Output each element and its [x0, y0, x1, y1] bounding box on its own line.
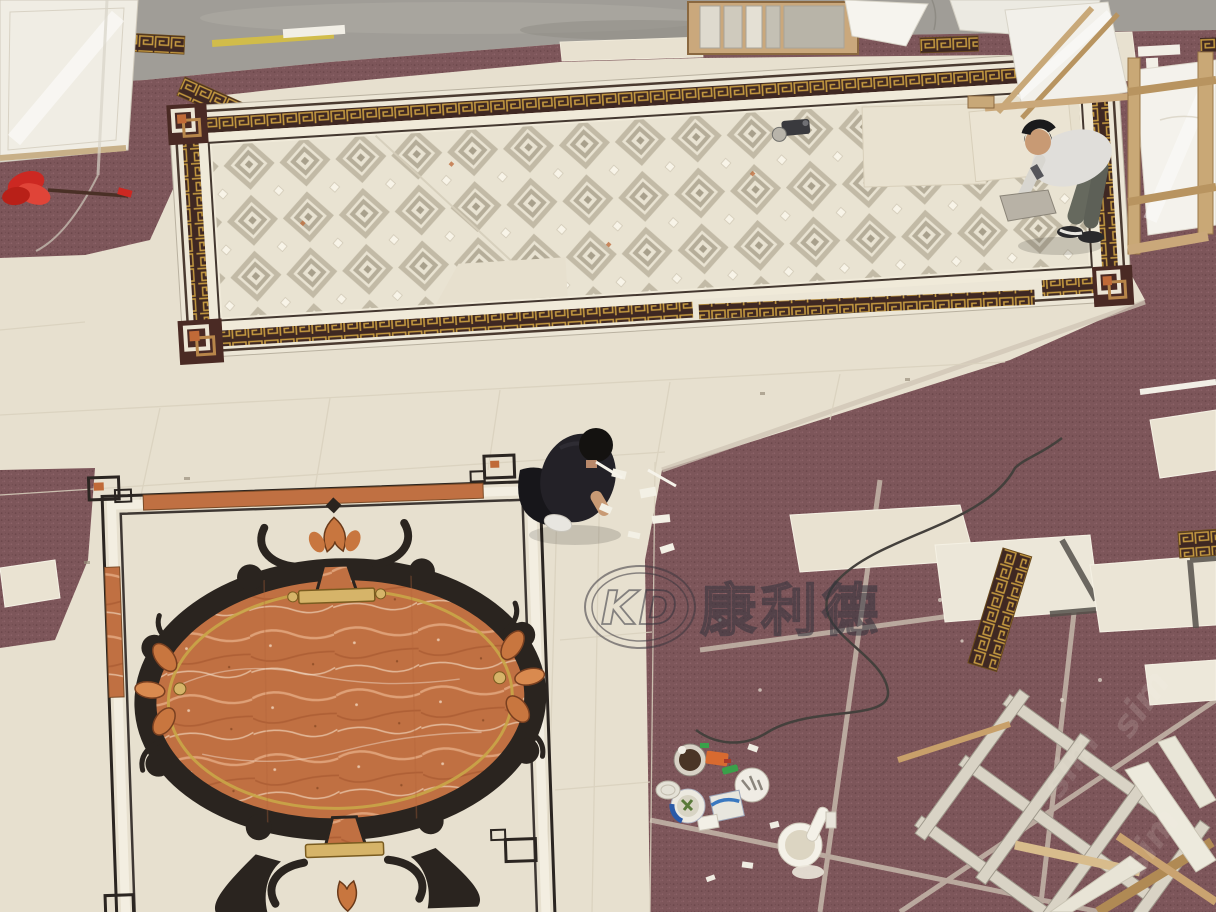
plaster-spill — [792, 865, 824, 879]
photo-canvas: KD 康利德 sim sim sim — [0, 0, 1216, 912]
meander-strip-inlaid — [1178, 529, 1216, 558]
watermark-logo-text: KD — [601, 581, 679, 635]
leaning-panel — [0, 0, 138, 162]
loose-cream-tile — [1150, 410, 1216, 478]
can-lid — [656, 781, 680, 799]
worker-head — [579, 428, 613, 462]
tile-crate — [688, 2, 858, 54]
watermark-brand-text: 康利德 — [700, 579, 883, 644]
green-tool — [700, 743, 709, 748]
loose-tile-on-carpet — [862, 104, 986, 187]
factory-floor-photo: KD 康利德 sim sim sim — [0, 0, 1216, 912]
loose-cream-tile — [0, 560, 60, 607]
